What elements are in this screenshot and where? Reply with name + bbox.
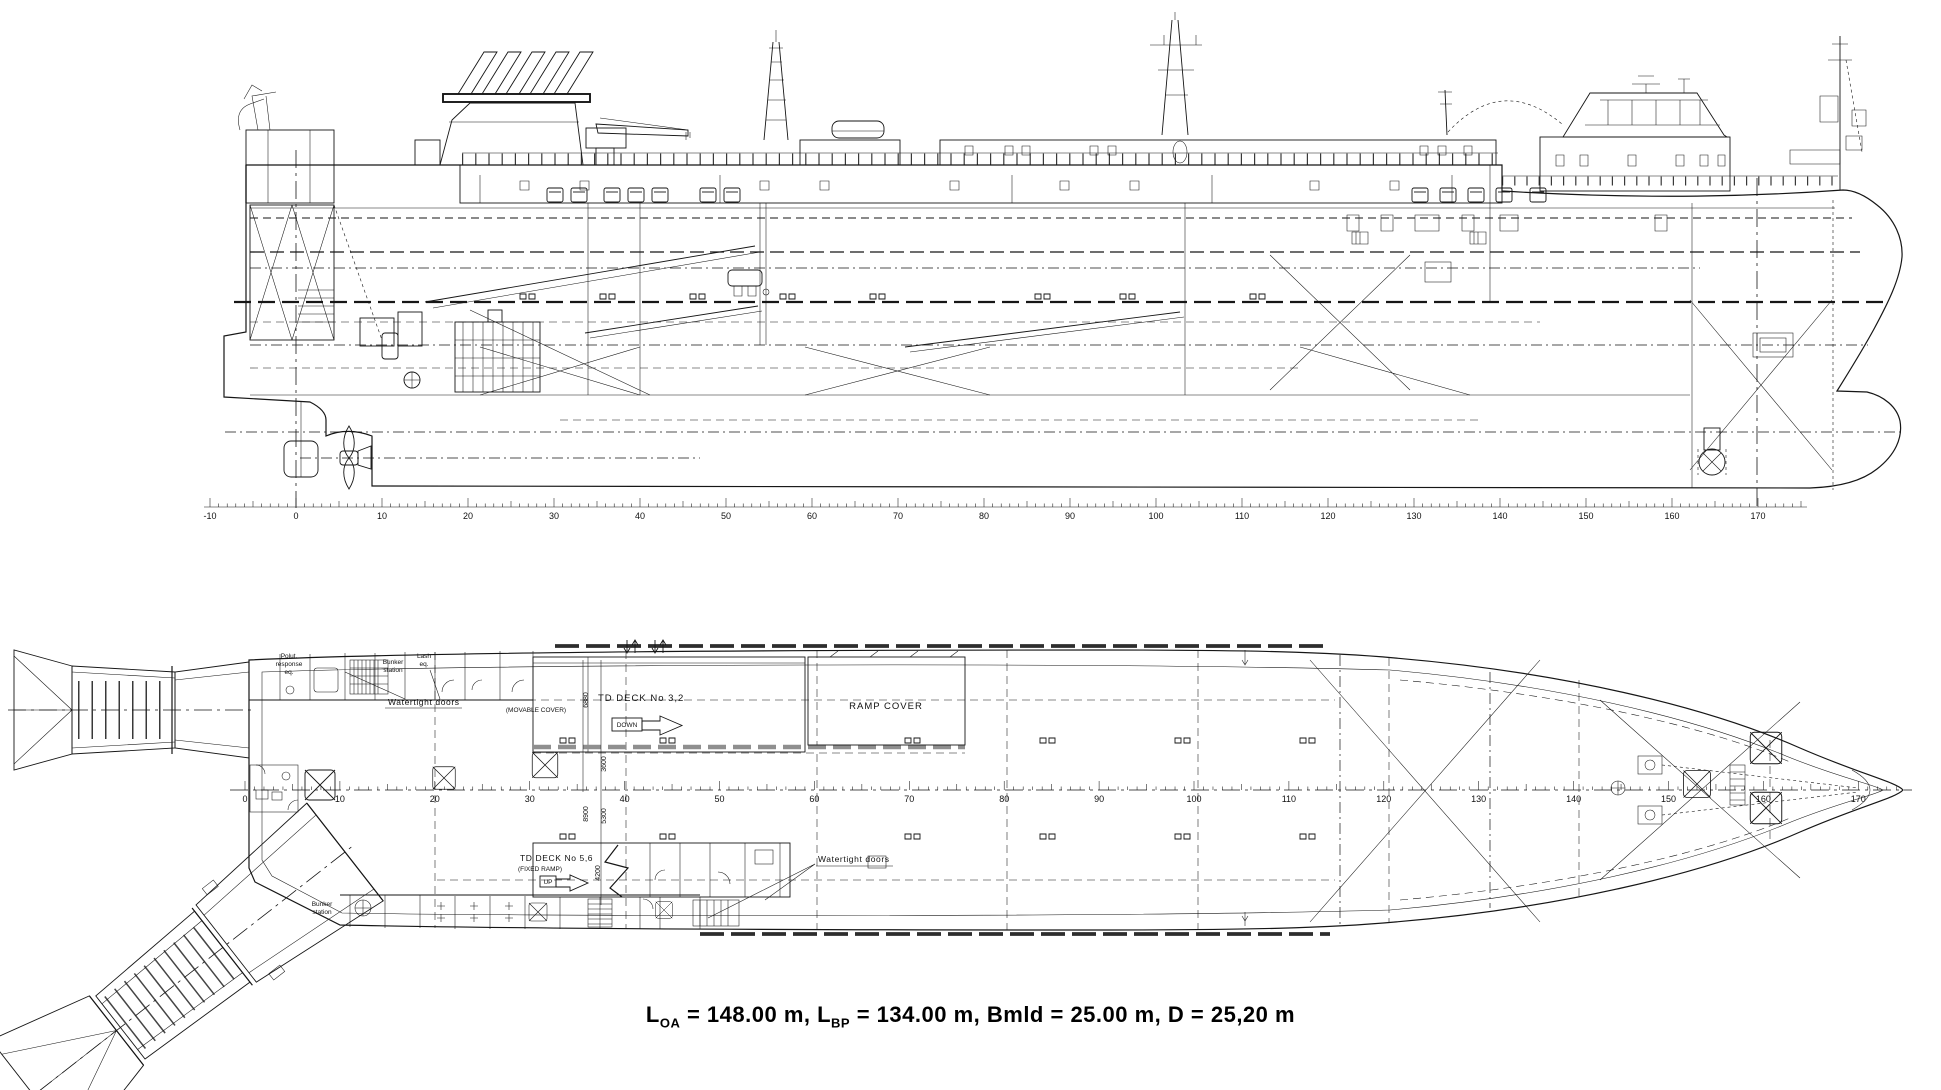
dim-8900: 8900 — [583, 806, 590, 822]
watertight-doors-aft-label: Watertight doors — [388, 697, 460, 707]
frame-number: 120 — [1320, 511, 1335, 521]
frame-number: 90 — [1094, 794, 1104, 804]
frame-number: 100 — [1186, 794, 1201, 804]
frame-number: 140 — [1492, 511, 1507, 521]
frame-number: 20 — [430, 794, 440, 804]
deck-hatches — [305, 732, 1782, 824]
frame-number: 0 — [293, 511, 298, 521]
movable-cover-label: (MOVABLE COVER) — [506, 707, 566, 714]
frame-number: 70 — [904, 794, 914, 804]
polut-response-label: Polut. — [281, 653, 298, 660]
hull-side-openings — [1347, 215, 1793, 357]
fixed-ramp-label: (FIXED RAMP) — [518, 866, 562, 873]
radar-mast — [1150, 12, 1202, 135]
frame-number: 130 — [1406, 511, 1421, 521]
watertight-doors-mid-label: Watertight doors — [818, 854, 890, 864]
stern-side-compartment — [250, 765, 298, 812]
principal-dimensions-caption: LOA = 148.00 m, LBP = 134.00 m, Bmld = 2… — [0, 1002, 1941, 1030]
frame-number: 150 — [1661, 794, 1676, 804]
quarter-ramp — [0, 791, 396, 1090]
svg-text:eq.: eq. — [419, 661, 428, 668]
signal-mast — [1438, 90, 1562, 135]
dim-6880: 6880 — [583, 692, 590, 708]
bow-mast — [1790, 36, 1866, 190]
down-label: DOWN — [617, 722, 638, 729]
propulsion — [284, 402, 371, 489]
bunker-station-top-label: Bunker — [383, 659, 404, 666]
profile-view: -100102030405060708090100110120130140150… — [203, 12, 1902, 521]
propeller — [340, 426, 371, 489]
frame-number: 20 — [463, 511, 473, 521]
cross-bracing — [470, 255, 1832, 470]
drawing-canvas: -100102030405060708090100110120130140150… — [0, 0, 1941, 1090]
frame-number: 170 — [1851, 794, 1866, 804]
ship-general-arrangement-drawing: -100102030405060708090100110120130140150… — [0, 0, 1941, 1090]
frame-number: 70 — [893, 511, 903, 521]
svg-text:eq.: eq. — [284, 669, 293, 676]
frame-number: 170 — [1750, 511, 1765, 521]
dim-5300: 5300 — [601, 808, 608, 824]
railings — [462, 153, 1838, 181]
stern-ramp — [8, 650, 255, 770]
td-deck-56 — [533, 843, 790, 897]
frame-number: 0 — [242, 794, 247, 804]
frame-number: 80 — [979, 511, 989, 521]
frame-number: 10 — [335, 794, 345, 804]
up-label: UP — [543, 879, 552, 886]
frame-number: 30 — [549, 511, 559, 521]
main-deck-fittings — [520, 270, 1265, 299]
frame-number: 50 — [714, 794, 724, 804]
main-mast — [764, 30, 788, 140]
frame-verticals — [296, 150, 1833, 508]
bridge — [1540, 76, 1730, 191]
dim-4200: 4200 — [595, 865, 602, 881]
svg-text:response: response — [276, 661, 303, 668]
frame-number: 130 — [1471, 794, 1486, 804]
frame-number: 60 — [809, 794, 819, 804]
frame-number: 30 — [525, 794, 535, 804]
frame-number: 90 — [1065, 511, 1075, 521]
frame-number: 100 — [1148, 511, 1163, 521]
frame-number: 120 — [1376, 794, 1391, 804]
funnel — [415, 52, 593, 165]
frame-number: 150 — [1578, 511, 1593, 521]
frame-number: 140 — [1566, 794, 1581, 804]
frame-number: 60 — [807, 511, 817, 521]
plan-labels: Polut. response eq. Bunker station Lash … — [276, 653, 923, 916]
ramp-cover-label: RAMP COVER — [849, 701, 923, 712]
internal-ramps — [425, 246, 1184, 352]
dim-3600: 3600 — [601, 756, 608, 772]
frame-number: 40 — [635, 511, 645, 521]
frame-number: 10 — [377, 511, 387, 521]
caption-loa-symbol: L — [646, 1002, 660, 1027]
deck-lines — [225, 218, 1900, 458]
td-deck-32-label: TD DECK No 3,2 — [598, 693, 684, 704]
frame-number: 160 — [1664, 511, 1679, 521]
aft-bottom-rooms — [340, 895, 700, 929]
frame-number: 110 — [1235, 511, 1249, 521]
profile-frame-scale: -100102030405060708090100110120130140150… — [203, 498, 1807, 521]
svg-text:station: station — [312, 909, 332, 916]
frame-number: 50 — [721, 511, 731, 521]
frame-number: 160 — [1756, 794, 1771, 804]
frame-number: 40 — [620, 794, 630, 804]
svg-text:station: station — [383, 667, 403, 674]
plan-frame-scale: 0102030405060708090100110120130140150160… — [242, 781, 1896, 804]
frame-number: 80 — [999, 794, 1009, 804]
bunker-station-bottom-label: Bunker — [312, 901, 333, 908]
td-deck-56-label: TD DECK No 5,6 — [520, 853, 593, 863]
frame-number: -10 — [203, 511, 216, 521]
rudder — [284, 402, 318, 477]
engine-room — [360, 310, 540, 392]
lash-eq-label: Lash — [417, 653, 431, 660]
bow-thruster — [1698, 428, 1726, 475]
frame-number: 110 — [1282, 794, 1296, 804]
